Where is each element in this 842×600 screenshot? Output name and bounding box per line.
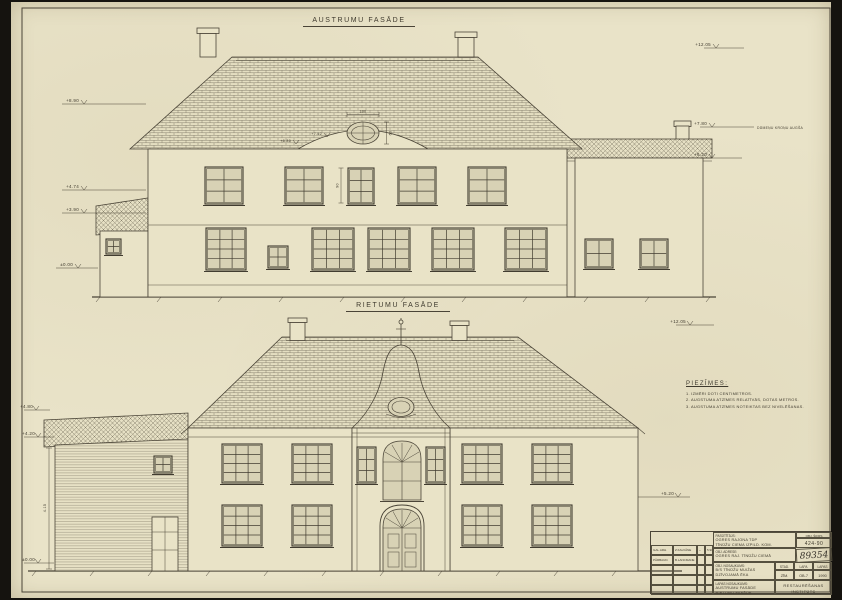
sig-name: B.LANCMANE bbox=[673, 555, 697, 565]
east-chimney-left-cap bbox=[197, 28, 219, 34]
note-item: 3. AUGSTUMA ATZĪMES NOTEIKTAS BEZ NIVELĒ… bbox=[686, 404, 838, 410]
dimension-label: 90 bbox=[336, 183, 340, 188]
window bbox=[290, 505, 334, 548]
signature-grid: GAL.ARH. Z.KALVĀNE ~ 5.90 PĀRBAUD. B.LAN… bbox=[651, 545, 713, 595]
east-wing-roof bbox=[567, 139, 712, 158]
sig-sign: ~ bbox=[697, 545, 705, 555]
titleblock-sheets-count: 1990 bbox=[813, 570, 832, 580]
west-arched-window bbox=[380, 441, 424, 502]
window bbox=[203, 167, 245, 206]
window bbox=[530, 505, 574, 548]
window bbox=[460, 505, 504, 548]
elevation-label: +12.05 bbox=[670, 319, 686, 324]
west-chimney-left-cap bbox=[288, 318, 307, 323]
title-block: GAL.ARH. Z.KALVĀNE ~ 5.90 PĀRBAUD. B.LAN… bbox=[650, 531, 831, 594]
west-entrance-door bbox=[380, 505, 424, 571]
sig-date bbox=[705, 555, 713, 565]
east-annex-roof bbox=[96, 198, 148, 235]
window bbox=[396, 167, 438, 206]
titleblock-stage-label: STAD. bbox=[775, 562, 794, 570]
titleblock-sheetname: LAPAS NOSAUKUMS: AUSTRUMU FASĀDE RIETUMU… bbox=[713, 580, 775, 595]
elevation-label: +3.90 bbox=[66, 207, 79, 212]
east-chimney-right-cap bbox=[455, 32, 477, 38]
west-chimney-left bbox=[290, 323, 305, 341]
elevation-label: +5.20 bbox=[661, 491, 674, 496]
west-chimney-right bbox=[452, 326, 467, 341]
window bbox=[530, 444, 574, 485]
east-chimney-right bbox=[458, 38, 474, 58]
elevation-label: ±0.00 bbox=[60, 262, 73, 267]
dimension-label: 60 bbox=[389, 131, 393, 136]
elevation-label: +4.80 bbox=[20, 404, 33, 409]
elevation-label: +8.90 bbox=[66, 98, 79, 103]
elevation-label: +6.20 bbox=[694, 152, 707, 157]
west-chimney-right-cap bbox=[450, 321, 469, 326]
dimension-label: 4.15 bbox=[43, 504, 47, 513]
sig-sign bbox=[697, 555, 705, 565]
window bbox=[503, 228, 549, 272]
notes-title: PIEZĪMES: bbox=[686, 381, 838, 387]
sig-role: GAL.ARH. bbox=[651, 545, 673, 555]
elevation-label: +4.20 bbox=[22, 431, 35, 436]
window bbox=[104, 239, 123, 256]
window bbox=[204, 228, 248, 272]
titleblock-sheet-number: OB-7 bbox=[794, 570, 813, 580]
titleblock-address: OBJ. ADRESE: OGRES RAJ. TĪNŪŽU CIEMĀ bbox=[713, 548, 796, 562]
notes-block: PIEZĪMES: 1. IZMĒRI DOTI CENTIMETROS. 2.… bbox=[686, 381, 838, 410]
east-chimney-left bbox=[200, 34, 216, 58]
titleblock-archive-number: 89354 bbox=[796, 547, 833, 563]
sig-name: Z.KALVĀNE bbox=[673, 545, 697, 555]
elevation-label: +7.80 bbox=[694, 121, 707, 126]
east-facade-title: AUSTRUMU FASĀDE bbox=[303, 17, 415, 27]
window bbox=[355, 447, 378, 485]
window bbox=[583, 239, 615, 270]
east-wing-wall bbox=[575, 158, 703, 297]
sig-date: 5.90 bbox=[705, 545, 713, 555]
window bbox=[152, 456, 174, 475]
titleblock-sheets-label: LAPAS bbox=[813, 562, 832, 570]
west-facade-title: RIETUMU FASĀDE bbox=[346, 302, 450, 312]
west-facade-elevation bbox=[28, 318, 682, 571]
titleblock-sheet-label: LAPA bbox=[794, 562, 813, 570]
dimension-label: +6.80 bbox=[280, 139, 291, 143]
window bbox=[346, 168, 376, 206]
window bbox=[638, 239, 670, 270]
window bbox=[430, 228, 476, 272]
titleblock-organization: RESTAURĒŠANAS INSTITŪTS bbox=[775, 580, 832, 595]
dimension-label: 100 bbox=[360, 110, 367, 114]
window bbox=[283, 167, 325, 206]
window bbox=[290, 444, 334, 485]
window bbox=[366, 228, 412, 272]
elevation-label: +4.74 bbox=[66, 184, 79, 189]
window bbox=[466, 167, 508, 206]
facade-drawing-svg: +8.90 +4.74 +3.90 ±0.00 +12.05 +7.80 DŪM… bbox=[0, 0, 842, 600]
elevation-note: DŪMEŅU KROŅU AUGŠA bbox=[757, 125, 804, 130]
window bbox=[310, 228, 356, 272]
window bbox=[220, 444, 264, 485]
elevation-label: ±0.00 bbox=[22, 557, 35, 562]
elevation-label: +12.05 bbox=[695, 42, 711, 47]
titleblock-stage: ZĪM. bbox=[775, 570, 794, 580]
window bbox=[220, 505, 264, 548]
titleblock-customer: PASŪTĪTĀJS: OGRES RAJONA TDP TĪNŪŽU CIEM… bbox=[713, 532, 796, 548]
titleblock-object: OBJ. NOSAUKUMS: B/S TĪNŪŽU MUIŽAS DZĪVOJ… bbox=[713, 562, 775, 580]
scanned-drawing-sheet: +8.90 +4.74 +3.90 ±0.00 +12.05 +7.80 DŪM… bbox=[0, 0, 842, 600]
window bbox=[266, 246, 290, 270]
window bbox=[424, 447, 447, 485]
dimension-label: +7.52 bbox=[311, 132, 322, 136]
sig-role: PĀRBAUD. bbox=[651, 555, 673, 565]
east-wing-chimney bbox=[676, 126, 689, 140]
window bbox=[460, 444, 504, 485]
